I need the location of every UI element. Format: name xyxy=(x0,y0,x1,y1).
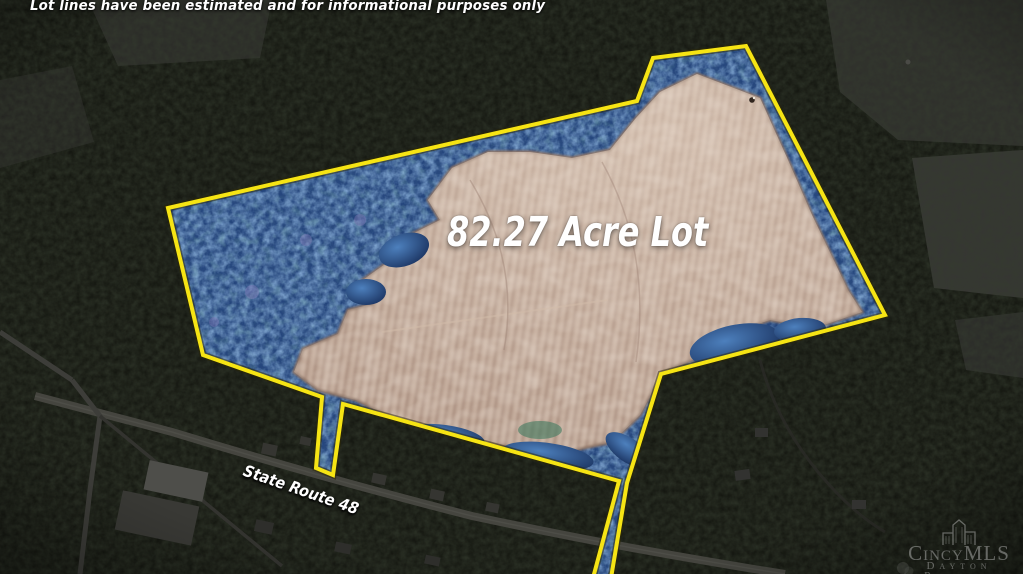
mls-watermark: CincyMLS Dayton Realtors xyxy=(893,519,1023,574)
tree-icon xyxy=(895,558,917,574)
lot-acreage-label: 82.27 Acre Lot xyxy=(447,208,708,256)
disclaimer-text: Lot lines have been estimated and for in… xyxy=(30,0,545,14)
satellite-imagery xyxy=(0,0,1023,574)
aerial-lot-photo: Lot lines have been estimated and for in… xyxy=(0,0,1023,574)
